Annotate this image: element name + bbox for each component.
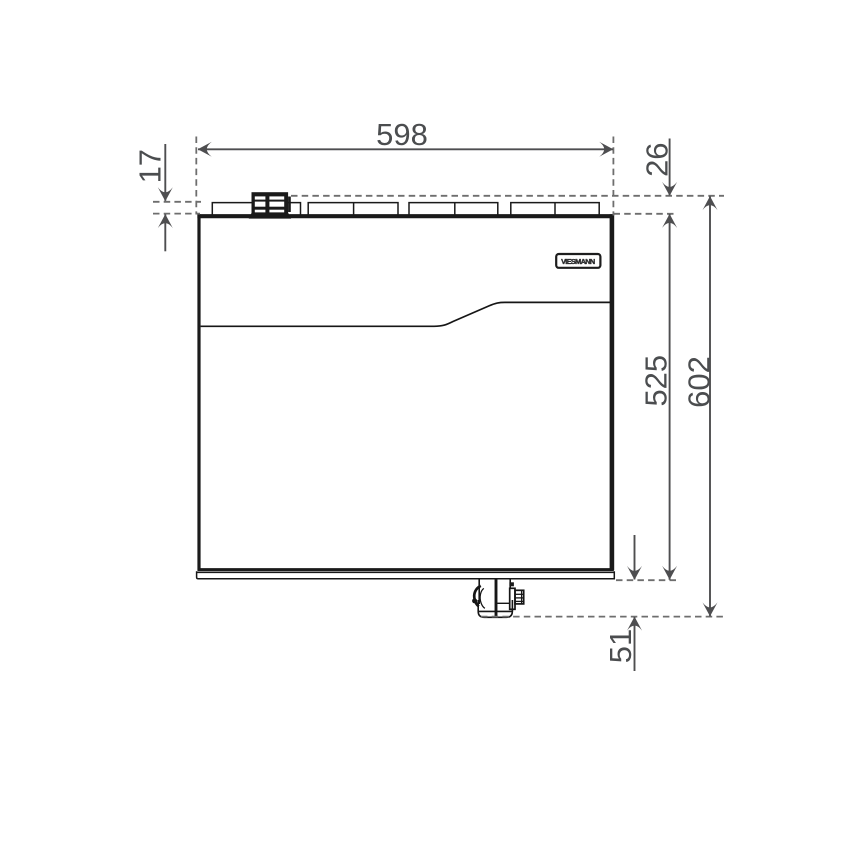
svg-text:51: 51 bbox=[603, 629, 638, 663]
svg-text:17: 17 bbox=[133, 149, 168, 183]
svg-text:602: 602 bbox=[681, 356, 716, 408]
svg-text:525: 525 bbox=[638, 355, 673, 407]
svg-text:VIESMANN: VIESMANN bbox=[561, 257, 595, 266]
svg-text:26: 26 bbox=[639, 142, 674, 176]
svg-text:598: 598 bbox=[376, 117, 428, 152]
